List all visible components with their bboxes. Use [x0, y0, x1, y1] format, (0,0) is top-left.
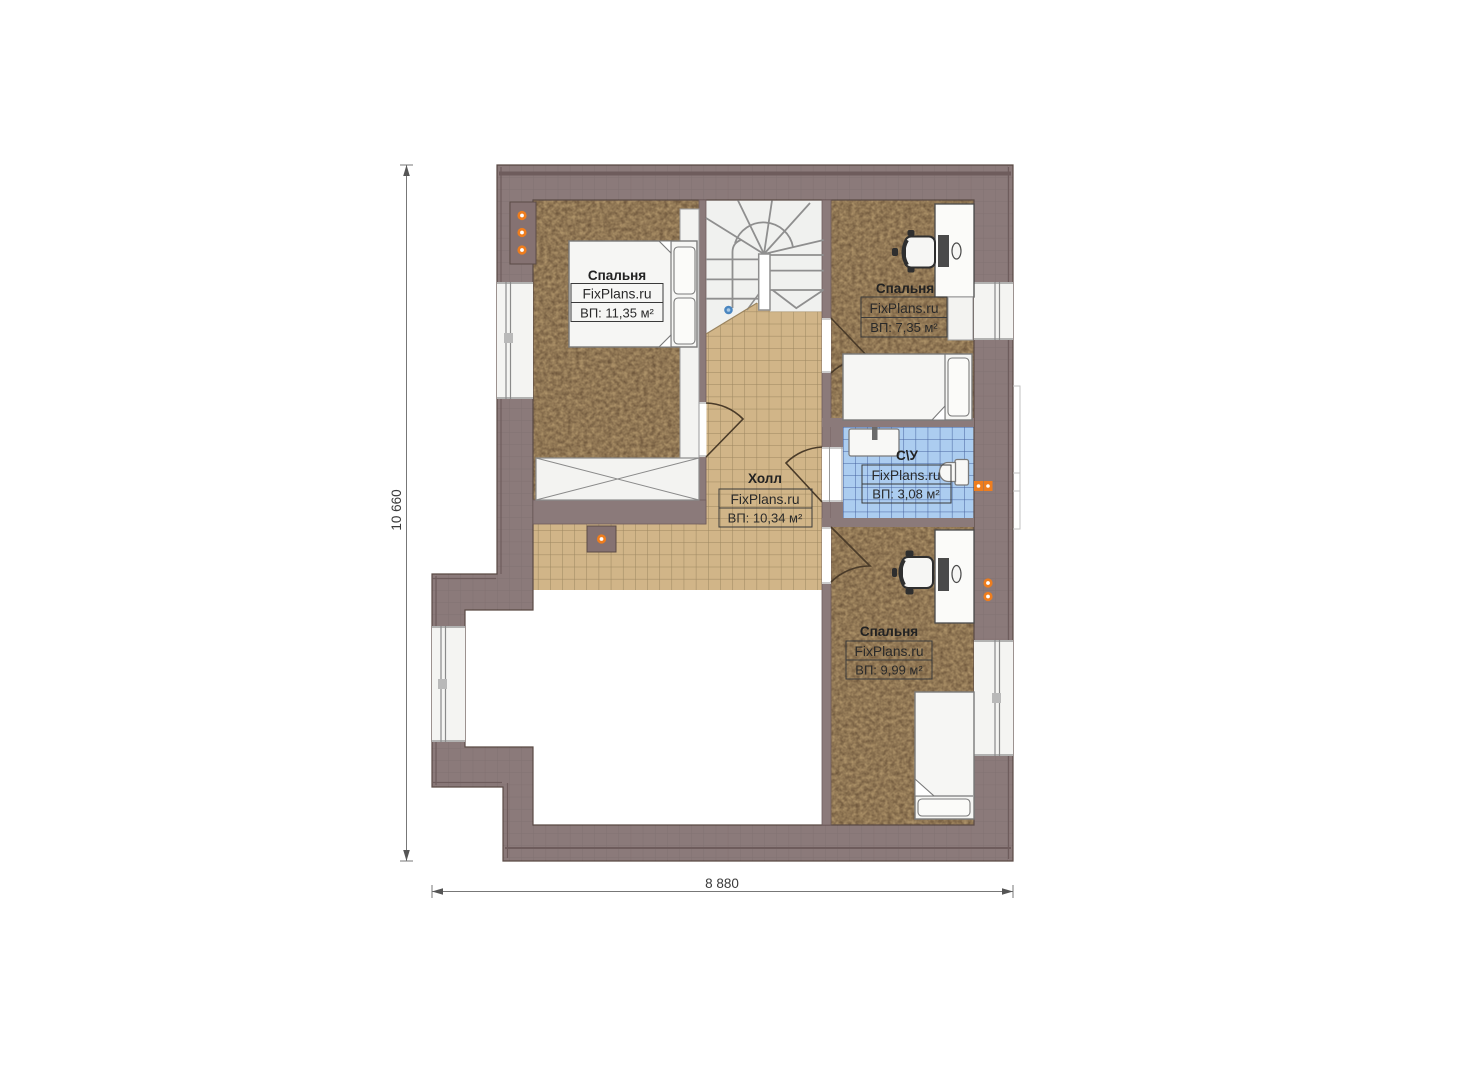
svg-text:FixPlans.ru: FixPlans.ru	[730, 492, 799, 507]
svg-text:Спальня: Спальня	[860, 624, 918, 639]
svg-text:ВП: 9,99 м²: ВП: 9,99 м²	[855, 663, 923, 678]
svg-text:FixPlans.ru: FixPlans.ru	[871, 468, 940, 483]
svg-text:ВП: 11,35 м²: ВП: 11,35 м²	[580, 306, 654, 321]
svg-text:ВП: 10,34 м²: ВП: 10,34 м²	[728, 511, 803, 526]
svg-text:Спальня: Спальня	[588, 268, 646, 283]
svg-text:Холл: Холл	[748, 471, 782, 486]
svg-text:FixPlans.ru: FixPlans.ru	[854, 644, 923, 659]
svg-text:Спальня: Спальня	[876, 281, 934, 296]
svg-text:FixPlans.ru: FixPlans.ru	[582, 287, 651, 302]
svg-text:ВП: 3,08 м²: ВП: 3,08 м²	[872, 487, 940, 502]
svg-text:8 880: 8 880	[705, 876, 739, 891]
svg-text:ВП: 7,35 м²: ВП: 7,35 м²	[870, 320, 938, 335]
svg-text:10 660: 10 660	[389, 489, 404, 530]
svg-text:С\У: С\У	[896, 448, 919, 463]
svg-text:FixPlans.ru: FixPlans.ru	[869, 301, 938, 316]
